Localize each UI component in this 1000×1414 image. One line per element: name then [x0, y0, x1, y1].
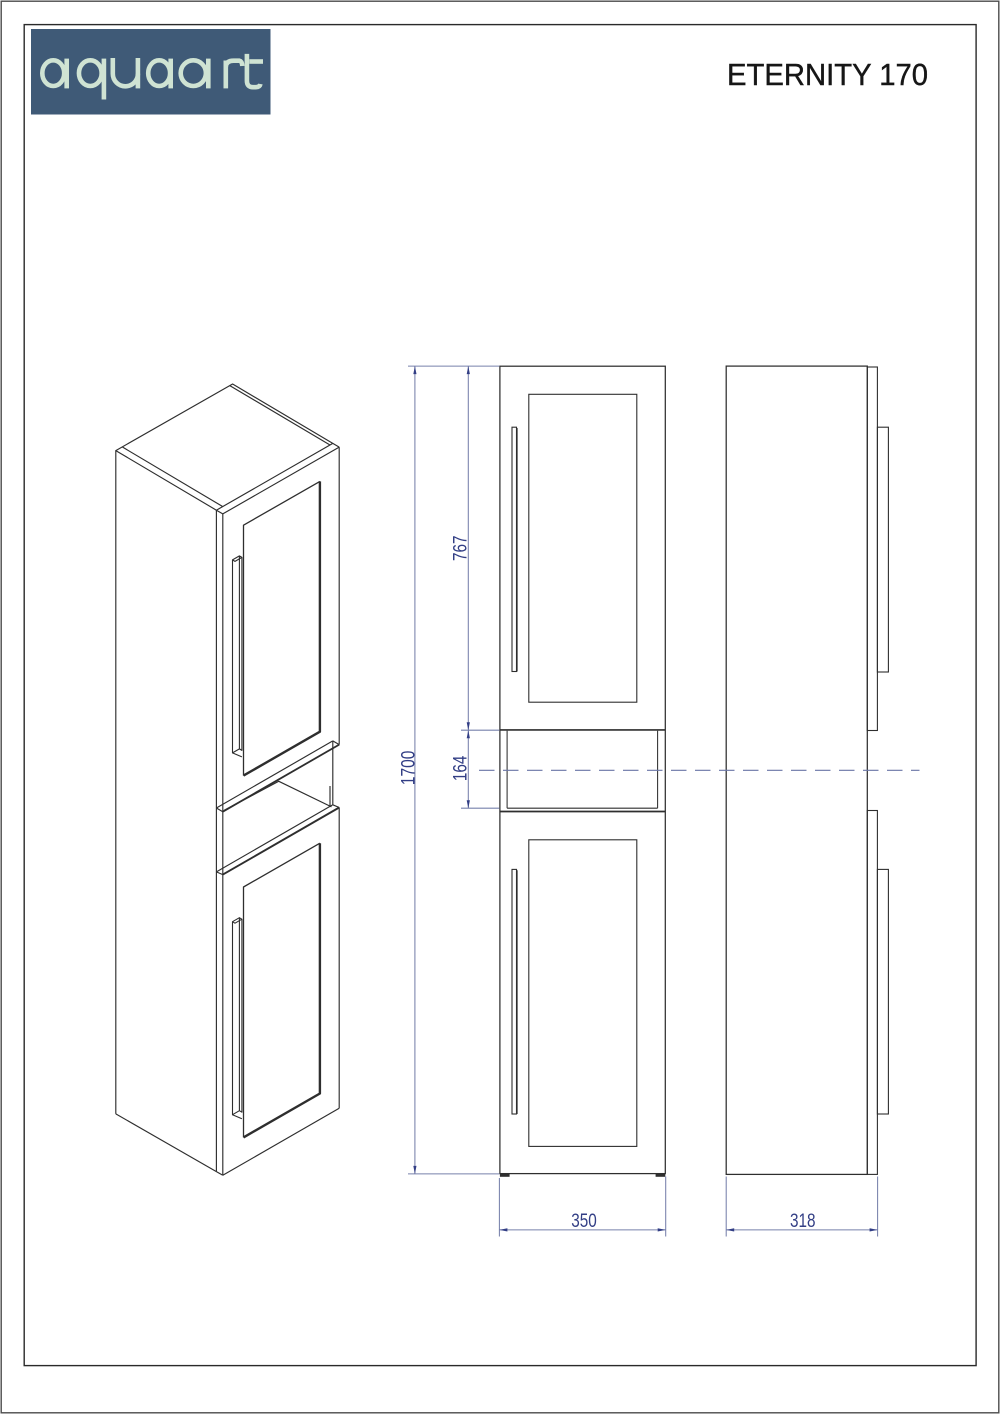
svg-text:164: 164	[451, 755, 472, 781]
svg-text:767: 767	[451, 536, 472, 562]
svg-text:350: 350	[571, 1211, 597, 1232]
svg-text:1700: 1700	[398, 751, 419, 786]
svg-text:ETERNITY 170: ETERNITY 170	[727, 57, 928, 92]
svg-text:318: 318	[790, 1211, 816, 1232]
